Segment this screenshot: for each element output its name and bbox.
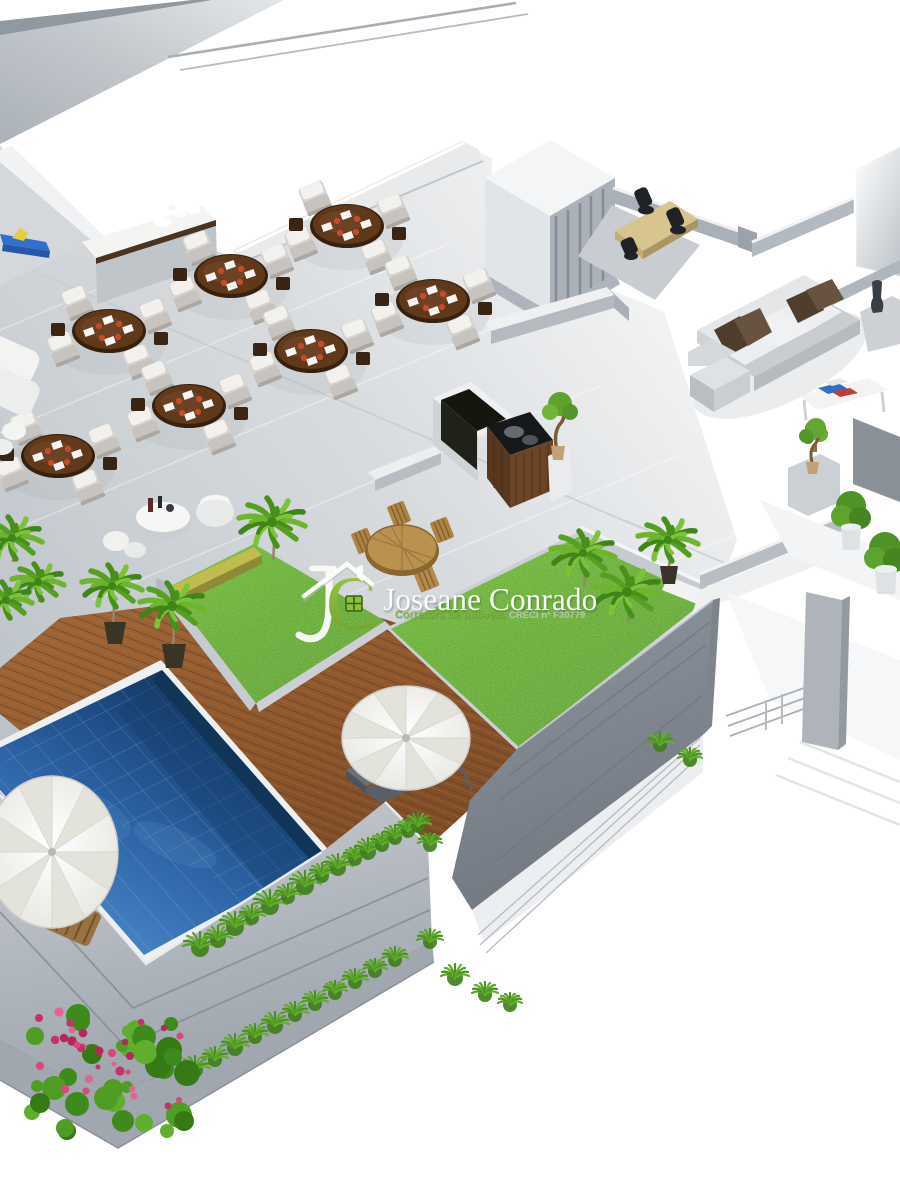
svg-text:Corretora de Imóveis: Corretora de Imóveis xyxy=(395,609,505,621)
svg-text:CRECI nº F30779: CRECI nº F30779 xyxy=(509,610,585,621)
